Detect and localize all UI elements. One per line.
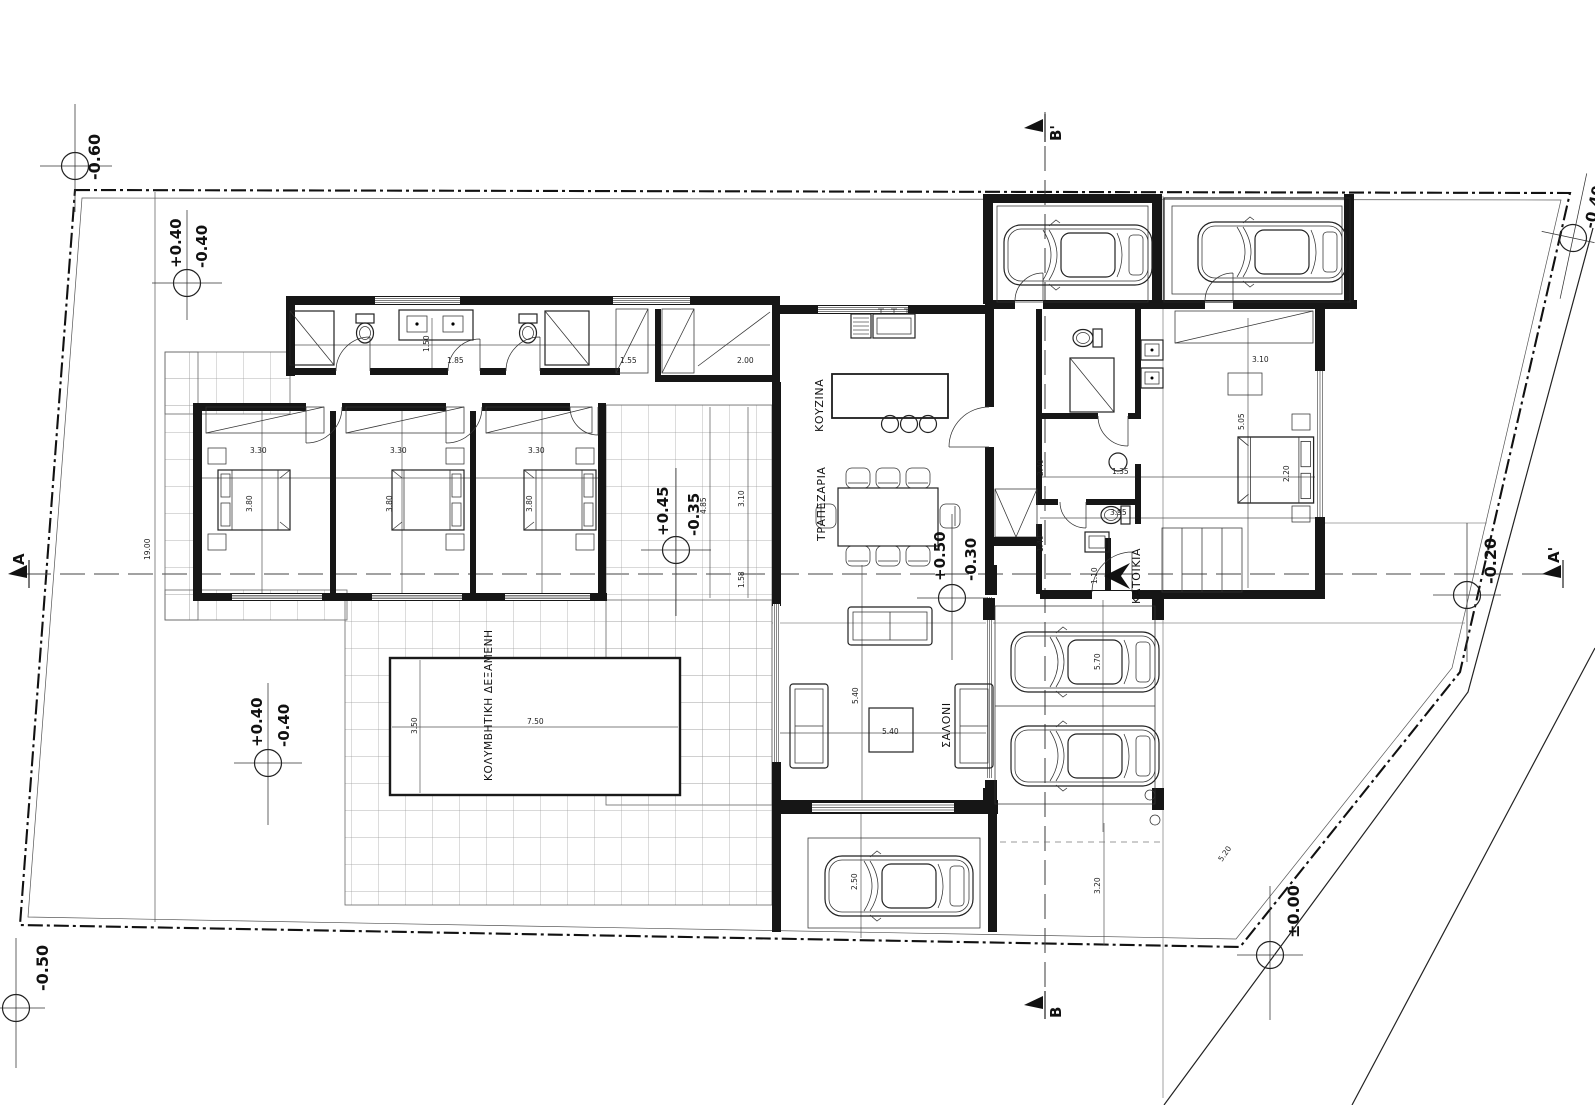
toilet-icon <box>519 314 537 343</box>
level-value: -0.40 <box>275 704 293 747</box>
section-label: B' <box>1047 125 1065 141</box>
level-value: -0.20 <box>1481 538 1500 584</box>
shower-icon <box>290 311 334 365</box>
dimension-label: 3.95 <box>1110 508 1127 517</box>
closet-diagonal <box>698 312 770 366</box>
chair-icon <box>940 504 960 528</box>
level-value: -0.50 <box>33 945 52 991</box>
floor-plan-canvas: -0.60 +0.40 -0.40 -0.40 +0.45 -0.35 +0.5… <box>0 0 1595 1105</box>
section-arrow-icon <box>1542 565 1561 578</box>
sofa-icon <box>790 684 828 768</box>
nightstand-icon <box>446 534 464 550</box>
nightstand-icon <box>208 448 226 464</box>
nightstand-icon <box>446 448 464 464</box>
level-value: +0.40 <box>248 697 266 747</box>
nightstand-icon <box>576 448 594 464</box>
elevation-marker: -0.50 <box>0 938 52 1068</box>
dimension-label: 1.58 <box>737 571 746 588</box>
room-label-living: ΣΑΛΟΝΙ <box>940 702 953 748</box>
garage-top <box>997 198 1350 302</box>
dimension-label: 5.70 <box>1093 653 1102 670</box>
dresser-icon <box>1228 373 1262 395</box>
kitchen-fixtures <box>832 309 948 433</box>
dimension-label: 1.50 <box>422 335 431 352</box>
cars <box>825 217 1346 921</box>
window <box>986 597 993 778</box>
chair-icon <box>876 468 900 488</box>
dimension-label: 2.00 <box>737 356 754 365</box>
elevation-marker: -0.40 <box>1529 167 1595 304</box>
dimension-label: 7.50 <box>527 717 544 726</box>
dimension-label: 1.85 <box>447 356 464 365</box>
nightstand-icon <box>208 534 226 550</box>
nightstand-icon <box>1292 506 1310 522</box>
dimension-label: 5.05 <box>1237 413 1246 430</box>
dimension-label: 3.30 <box>528 446 545 455</box>
section-label: A <box>10 553 28 565</box>
fireplace-unit <box>992 489 1040 546</box>
window <box>375 297 460 304</box>
bed-icon <box>524 470 596 530</box>
section-marker-a: A <box>8 553 29 588</box>
elevation-marker: +0.40 -0.40 <box>152 210 222 320</box>
dimension-label: 3.10 <box>737 490 746 507</box>
window <box>505 594 590 600</box>
window <box>232 594 322 600</box>
window <box>773 604 780 762</box>
chair-icon <box>906 546 930 566</box>
nightstand-icon <box>1292 414 1310 430</box>
room-label-kitchen: ΚΟΥΖΙΝΑ <box>813 379 826 432</box>
section-label: A' <box>1545 547 1563 563</box>
dimension-label: 2.40 <box>1036 459 1045 476</box>
nightstand-icon <box>576 534 594 550</box>
room-label-residence: ΚΑΤΟΙΚΙΑ <box>1130 548 1143 604</box>
bed-icon <box>218 470 290 530</box>
vanity-double-sink <box>399 310 473 340</box>
wardrobe-icon <box>1175 311 1313 343</box>
dimension-label: 1.40 <box>1036 535 1045 552</box>
window <box>1316 371 1324 517</box>
level-value: ±0.00 <box>1284 885 1303 938</box>
dishwasher-icon <box>851 314 871 338</box>
elevation-marker: ±0.00 <box>1237 885 1303 1020</box>
bed-icon <box>1238 437 1314 503</box>
window <box>372 594 462 600</box>
section-marker-a-prime: A' <box>1542 547 1563 588</box>
shower-icon <box>1070 358 1114 412</box>
dimension-label: 4.85 <box>699 497 708 514</box>
kitchen-island <box>832 374 948 418</box>
level-value: -0.40 <box>193 225 211 268</box>
level-value: -0.60 <box>85 134 104 180</box>
chair-icon <box>846 546 870 566</box>
floor-plan-page: -0.60 +0.40 -0.40 -0.40 +0.45 -0.35 +0.5… <box>0 0 1595 1105</box>
sink-icon <box>1141 340 1163 360</box>
car-icon <box>1011 721 1159 791</box>
elevation-marker: +0.40 -0.40 <box>234 683 302 825</box>
elevation-marker: -0.20 <box>1433 523 1501 662</box>
dimension-label: 3.80 <box>525 495 534 512</box>
dimension-label: 3.30 <box>390 446 407 455</box>
dimension-label: 5.40 <box>882 727 899 736</box>
dimension-label: 3.50 <box>410 717 419 734</box>
dimension-label: 5.40 <box>851 687 860 704</box>
room-label-pool: ΚΟΛΥΜΒΗΤΙΚΗ ΔΕΞΑΜΕΝΗ <box>483 629 495 781</box>
bed-icon <box>392 470 464 530</box>
road-edges <box>772 196 1595 1105</box>
dimension-label: 3.80 <box>245 495 254 512</box>
entrance-porch <box>1162 528 1242 592</box>
section-marker-b-prime: B' <box>1024 114 1065 142</box>
level-value: +0.40 <box>167 218 185 268</box>
dimension-label: 3.20 <box>1093 877 1102 894</box>
section-arrow-icon <box>8 565 27 578</box>
chair-icon <box>906 468 930 488</box>
sofa-icon <box>848 607 932 645</box>
dimension-label: 19.00 <box>143 538 152 560</box>
shower-icon <box>545 311 589 365</box>
section-arrow-icon <box>1024 119 1043 132</box>
dimension-label: 2.20 <box>1282 465 1291 482</box>
dimension-label: 3.10 <box>1252 355 1269 364</box>
dimension-label: 1.10 <box>1090 567 1099 584</box>
car-icon <box>825 851 973 921</box>
elevation-marker: +0.50 -0.30 <box>917 514 987 660</box>
elevation-markers: -0.60 +0.40 -0.40 -0.40 +0.45 -0.35 +0.5… <box>0 104 1595 1068</box>
section-marker-b: B <box>1024 991 1065 1019</box>
section-arrow-icon <box>1024 996 1043 1009</box>
closet-icon <box>662 309 694 373</box>
window <box>613 297 690 304</box>
swimming-pool <box>390 658 680 795</box>
chair-icon <box>876 546 900 566</box>
dimension-label: 1.35 <box>1112 467 1129 476</box>
section-label: B <box>1047 1007 1065 1018</box>
dining-table <box>838 488 938 546</box>
level-value: +0.45 <box>654 486 672 536</box>
carport <box>983 598 1164 842</box>
sink-icon <box>1141 368 1163 388</box>
car-icon <box>1004 220 1152 290</box>
toilet-icon <box>1073 329 1102 347</box>
dimension-label: 1.55 <box>620 356 637 365</box>
dimension-label: 3.30 <box>250 446 267 455</box>
window <box>812 803 954 812</box>
dimension-label: 2.50 <box>850 873 859 890</box>
car-icon <box>1011 627 1159 697</box>
section-markers: A A' B' B <box>8 114 1563 1019</box>
car-icon <box>1198 217 1346 287</box>
elevation-marker: -0.60 <box>40 104 112 212</box>
dimension-label: 3.80 <box>385 495 394 512</box>
level-value: +0.50 <box>931 531 949 581</box>
window <box>818 306 908 313</box>
room-label-dining: ΤΡΑΠΕΖΑΡΙΑ <box>815 466 828 542</box>
level-value: -0.30 <box>962 538 980 581</box>
chair-icon <box>846 468 870 488</box>
dimension-label: 5.20 <box>1216 844 1233 863</box>
